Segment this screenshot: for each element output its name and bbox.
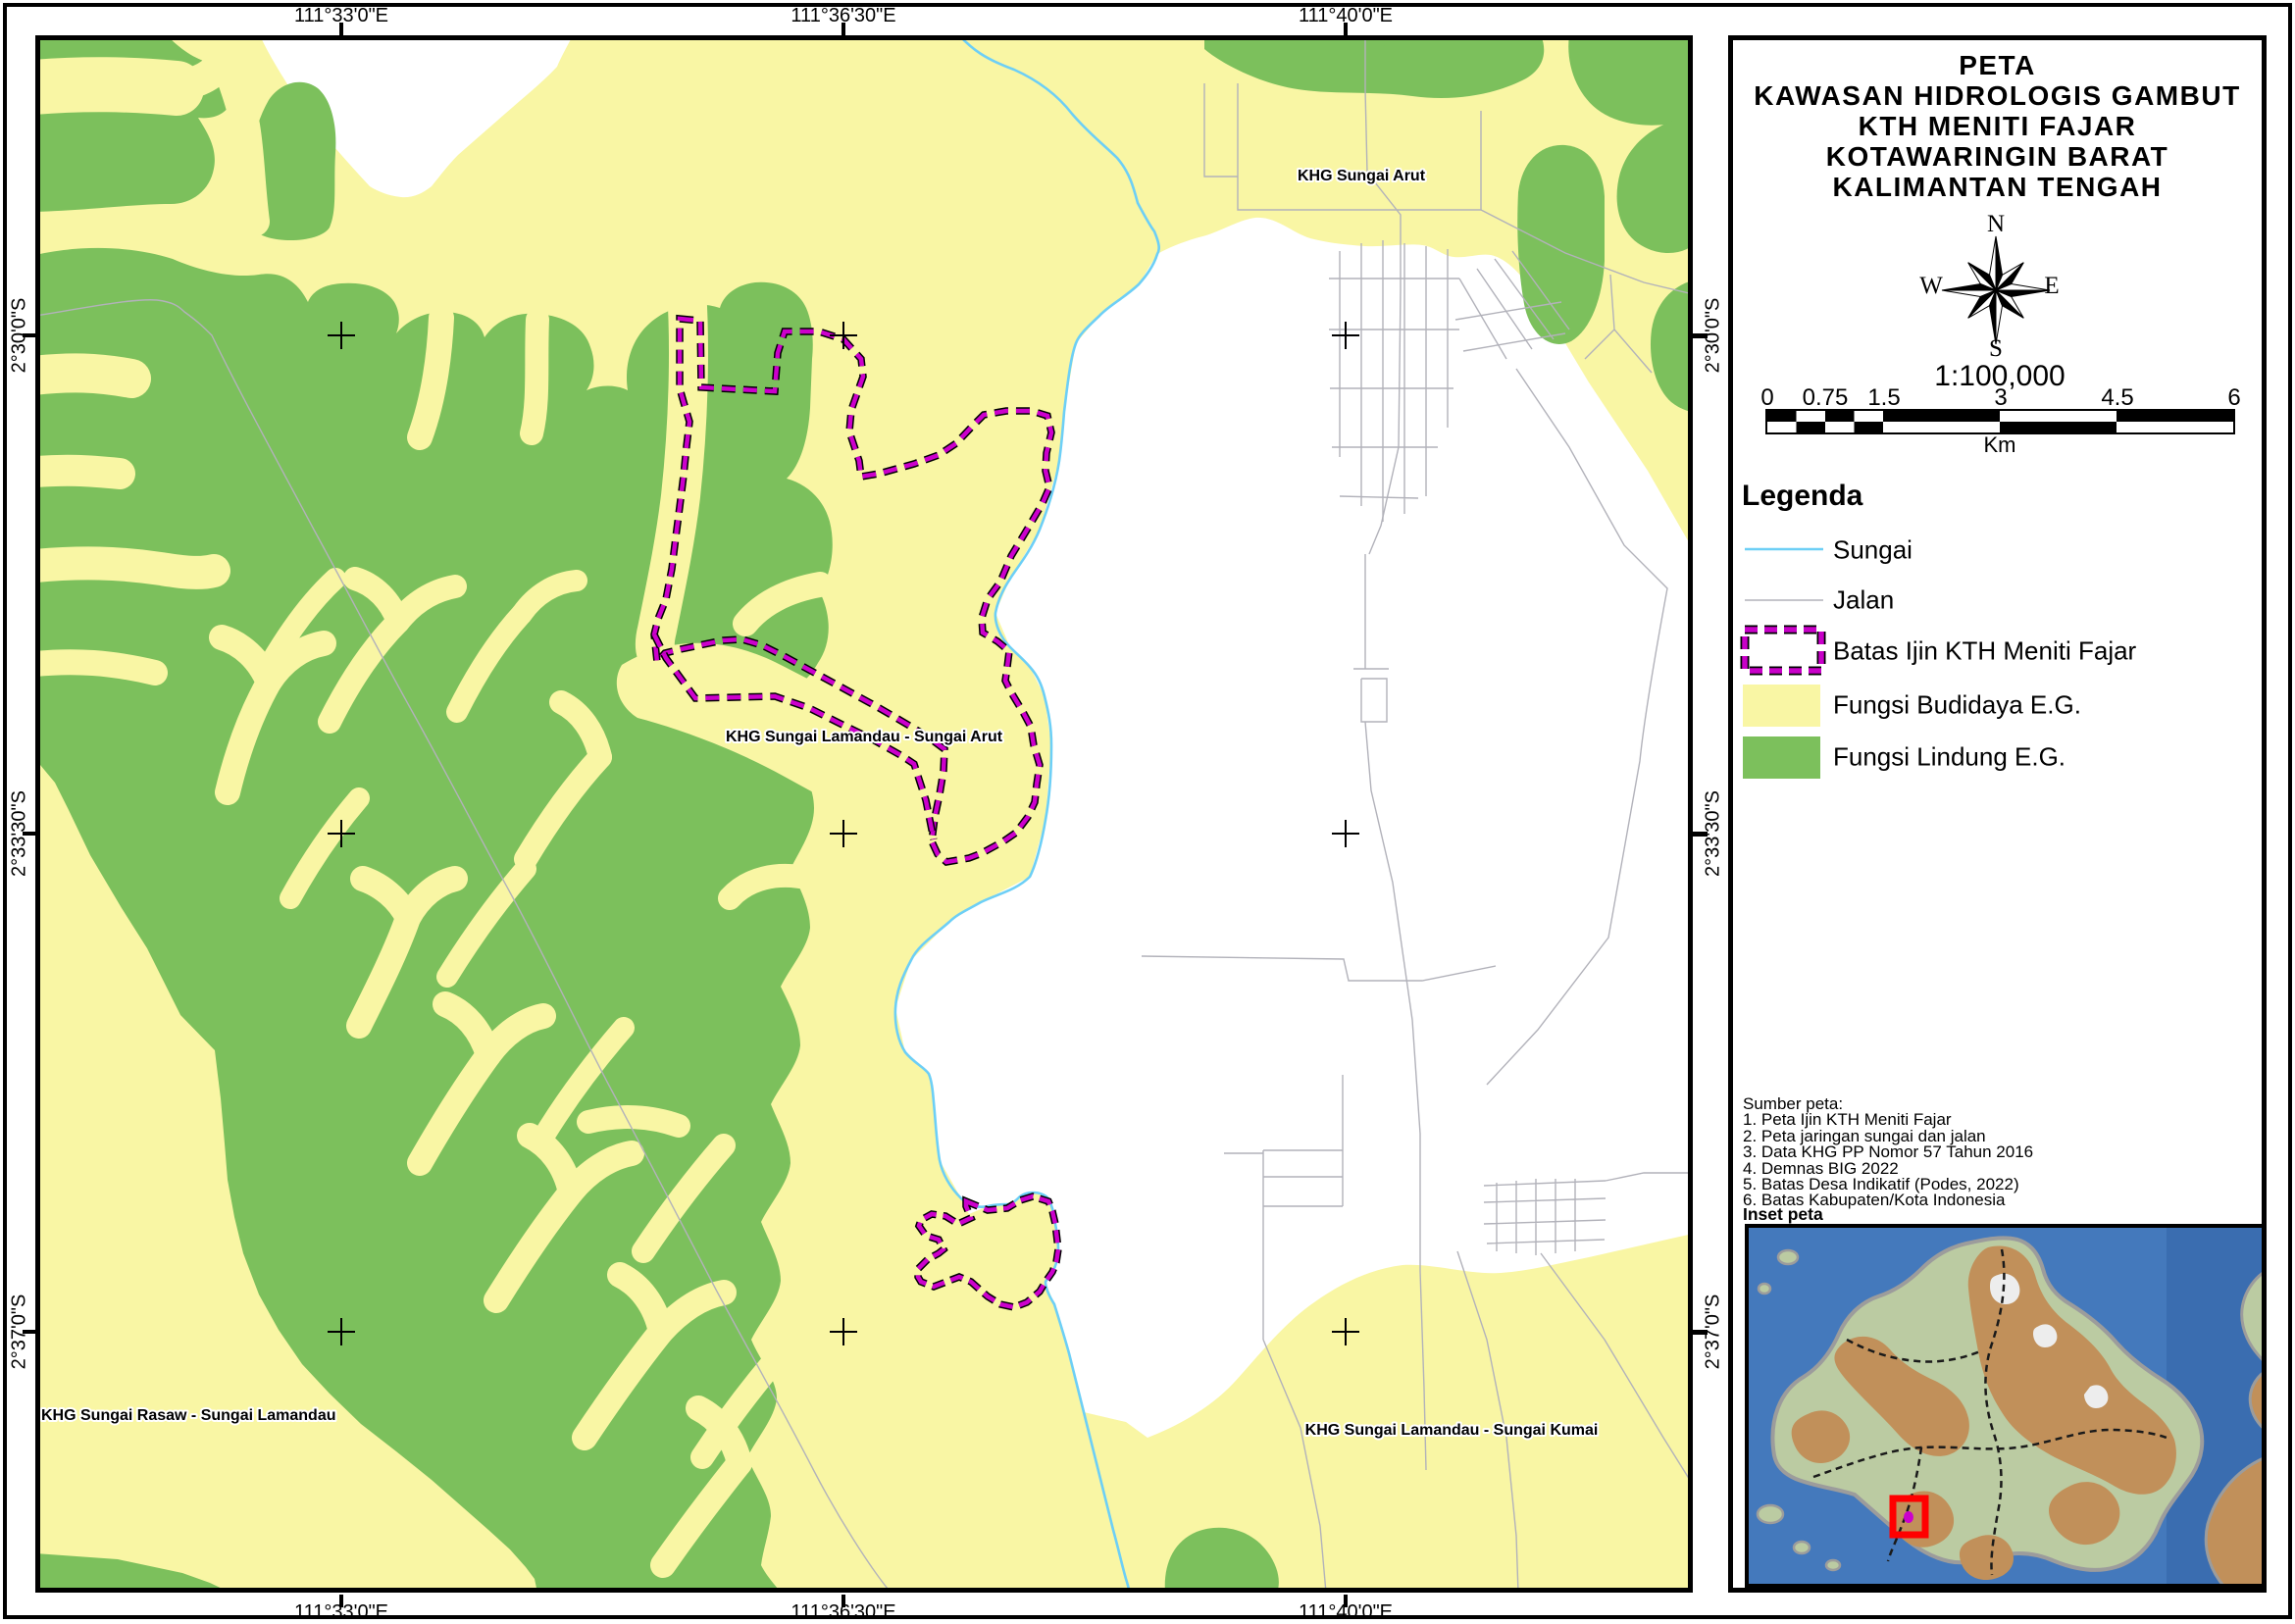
svg-text:KHG Sungai Arut: KHG Sungai Arut [1298,168,1426,184]
svg-text:KHG Sungai Rasaw - Sungai Lama: KHG Sungai Rasaw - Sungai Lamandau [41,1407,336,1424]
svg-text:KHG Sungai Lamandau - Sungai K: KHG Sungai Lamandau - Sungai Kumai [1305,1422,1599,1439]
svg-text:KHG Sungai Lamandau - Sungai A: KHG Sungai Lamandau - Sungai Arut [726,729,1003,745]
